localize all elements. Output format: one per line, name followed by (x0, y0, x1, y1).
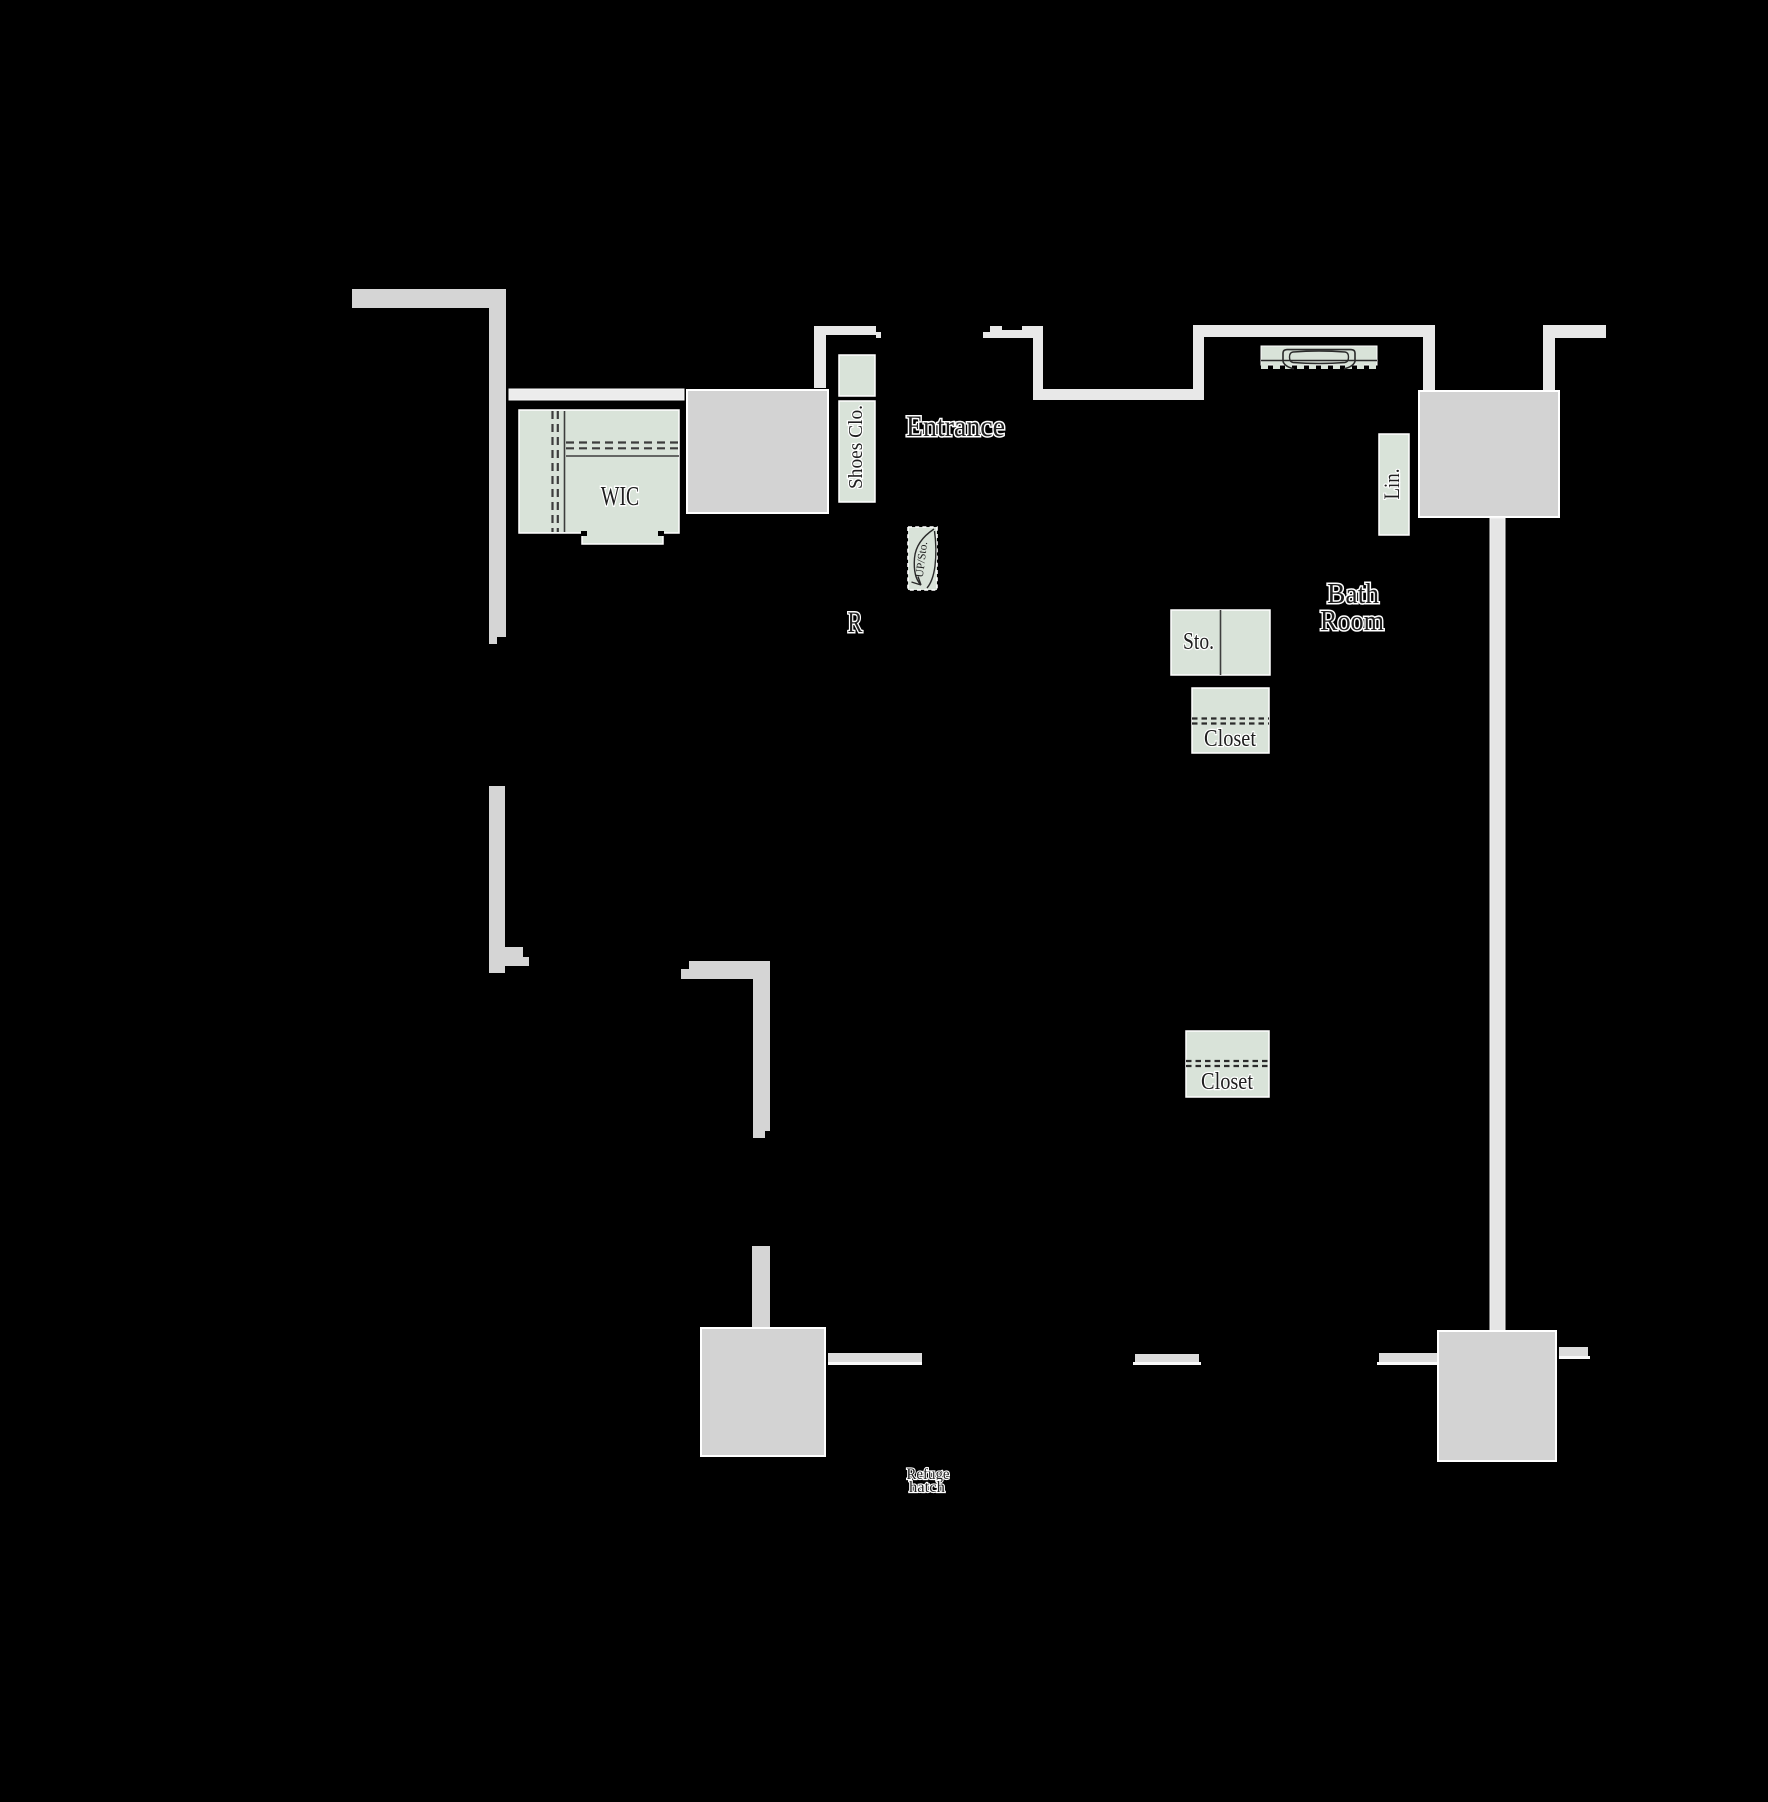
svg-text:Closet: Closet (1204, 726, 1256, 752)
svg-text:Shoes Clo.: Shoes Clo. (845, 405, 867, 489)
svg-text:WIC: WIC (601, 481, 640, 511)
svg-text:hatch: hatch (909, 1479, 945, 1496)
svg-text:R: R (848, 606, 863, 639)
svg-text:Room: Room (1320, 606, 1384, 637)
svg-text:Sto.: Sto. (1183, 629, 1214, 655)
svg-text:Lin.: Lin. (1379, 469, 1404, 500)
svg-text:Closet: Closet (1201, 1069, 1253, 1095)
svg-text:Entrance: Entrance (906, 410, 1005, 443)
